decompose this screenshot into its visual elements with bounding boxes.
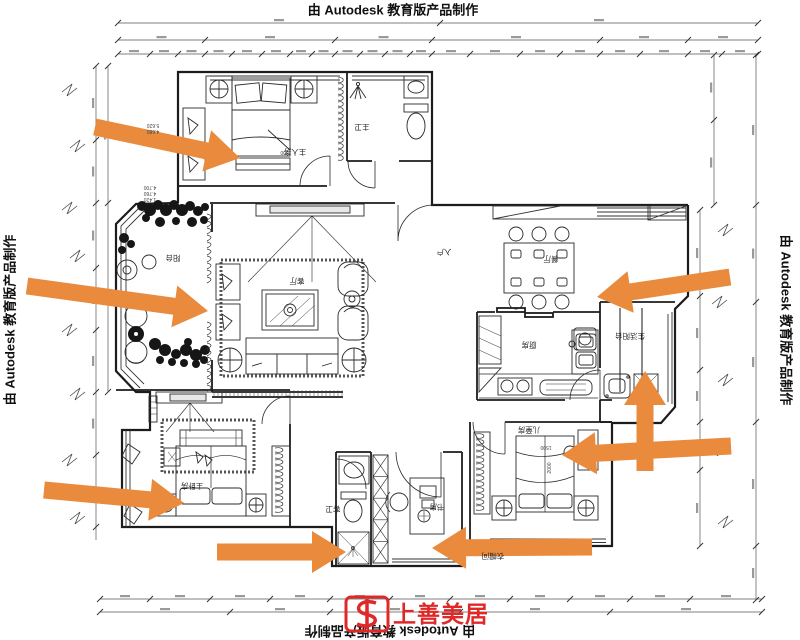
bed-dimension: 1800 <box>280 149 291 155</box>
dimension-chains <box>62 19 765 615</box>
room-label-utility-balcony: 生活阳台 <box>615 331 645 342</box>
direction-arrow <box>43 479 184 521</box>
watermark-right: 由 Autodesk 教育版产品制作 <box>778 235 797 405</box>
guest-bath-furniture <box>338 456 369 564</box>
room-label-cloak: 衣帽间 <box>482 551 505 562</box>
direction-arrow <box>597 269 731 313</box>
watermark-left: 由 Autodesk 教育版产品制作 <box>0 235 19 405</box>
logo-text: 上善美居 <box>393 603 489 626</box>
logo-mark-icon <box>344 595 390 633</box>
room-label-balcony: 阳台 <box>166 253 181 264</box>
room-label-master-bottom: 主卧房 <box>181 481 204 492</box>
room-label-dining: 餐厅 <box>544 254 559 265</box>
room-label-living: 客厅 <box>290 276 305 287</box>
bed-master-top <box>183 76 317 180</box>
room-label-guest-bath: 客卫 <box>326 504 341 515</box>
room-label-study: 书房 <box>430 502 445 513</box>
bed-dimension: 1500 <box>540 444 551 450</box>
room-label-kids: 儿童房 <box>518 425 541 436</box>
dining-furniture <box>504 227 596 350</box>
living-room-furniture <box>216 204 376 376</box>
room-label-kitchen: 厨房 <box>522 340 537 351</box>
room-label-master-bath: 主卫 <box>355 122 370 133</box>
direction-arrow <box>93 119 240 172</box>
annotation-arrows <box>26 119 732 573</box>
direction-arrow <box>217 531 346 573</box>
room-label-entry: 入户 <box>437 247 452 258</box>
floorplan-screenshot: 由 Autodesk 教育版产品制作 由 Autodesk 教育版产品制作 由 … <box>0 0 800 640</box>
floor-plan-svg <box>0 0 800 640</box>
watermark-top: 由 Autodesk 教育版产品制作 <box>308 0 478 19</box>
elevation-annotation: 1.420 <box>144 196 157 202</box>
bed-dimension: 2000 <box>547 462 553 473</box>
direction-arrow <box>432 527 592 569</box>
company-logo: 上善美居 <box>344 595 489 633</box>
elevation-annotation: 4.680 <box>147 128 160 134</box>
